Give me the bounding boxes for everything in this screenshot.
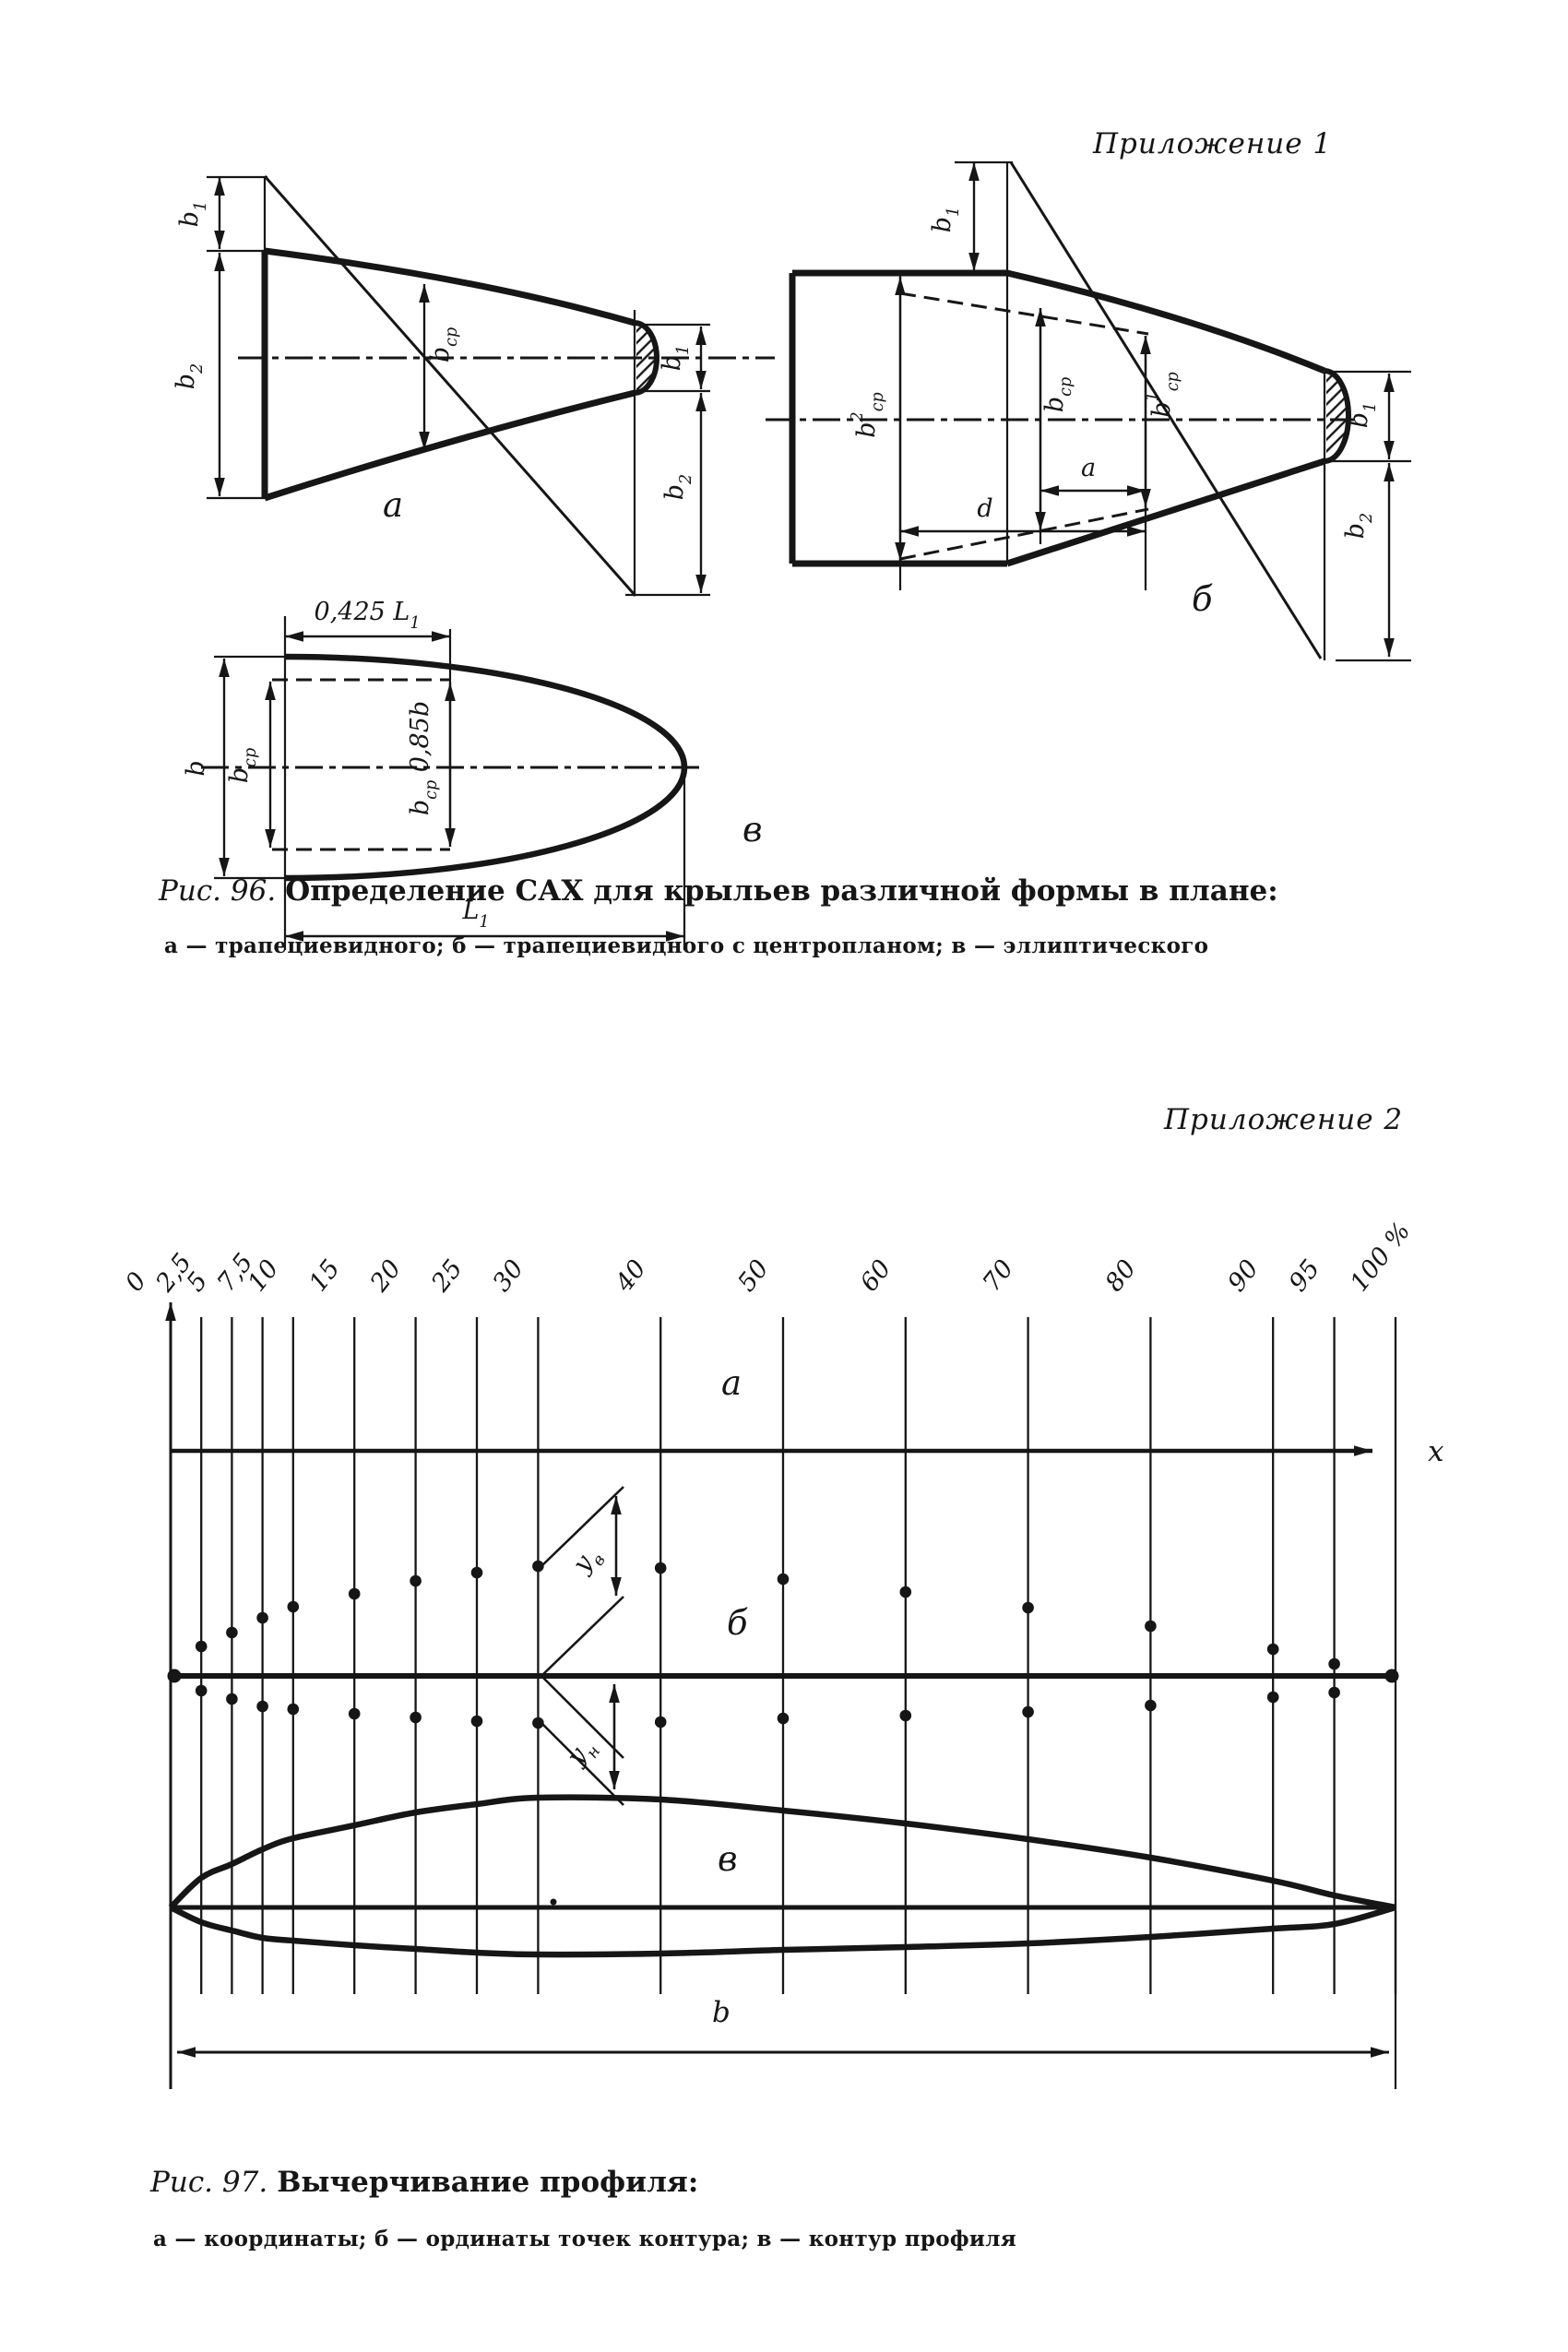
- dim-yn-arrowhead: [609, 1771, 620, 1789]
- dim-b2-right-b-arrowhead: [1384, 463, 1395, 481]
- fig97-diagram: [165, 162, 1398, 2089]
- fig96-diagram-a-trapezoid-wing: [207, 176, 775, 596]
- dim-b1-top-b-arrowhead: [968, 253, 980, 271]
- fig97-percent-scale: 02,557,5101520253040506070809095100 %: [120, 1218, 1416, 1298]
- lower-ordinate-dot: [410, 1712, 422, 1724]
- lower-ordinate-dot: [349, 1708, 361, 1720]
- chord-length-label: b: [712, 1996, 731, 2029]
- dim-b1sr-arrowhead: [1140, 336, 1151, 354]
- station-percent-label: 0: [120, 1267, 152, 1298]
- dim-b-v-arrowhead: [219, 858, 230, 876]
- lower-ordinate-dot: [655, 1716, 667, 1728]
- x-axis-arrowhead: [1354, 1445, 1372, 1456]
- dim-label-a: a: [1081, 454, 1096, 482]
- dim-label-b1-left-a: b1: [175, 201, 210, 227]
- dim-0425l1-arrowhead: [285, 631, 303, 642]
- part-label-v-fig97: в: [718, 1839, 738, 1879]
- dim-b1-right-b-arrowhead: [1384, 441, 1395, 459]
- station-percent-label: 40: [610, 1254, 652, 1298]
- chord-mark-dot: [551, 1899, 557, 1906]
- leading-edge: [265, 251, 635, 323]
- dim-l1-arrowhead: [285, 931, 303, 942]
- lower-ordinate-dot: [1022, 1706, 1034, 1718]
- figures-canvas: b1 b2 bср b1 b2 а b1 b2ср bср b1ср a d b…: [0, 0, 1568, 2352]
- dim-yv-arrowhead: [611, 1577, 622, 1596]
- baseline-end-dot: [1385, 1669, 1399, 1683]
- left-extension-ticks: [207, 177, 267, 498]
- station-percent-label: 60: [855, 1254, 897, 1297]
- dim-label-b1-top-b: b1: [928, 207, 963, 232]
- lower-ordinate-dot: [256, 1701, 268, 1713]
- fig97-dimension-arrows: [165, 162, 1395, 2089]
- trailing-edge: [1007, 461, 1324, 564]
- fig97-station-lines: [201, 1317, 1396, 1994]
- lower-ordinate-dot: [532, 1717, 544, 1729]
- dim-a-arrowhead: [1040, 485, 1059, 496]
- upper-ordinate-dot: [532, 1561, 544, 1573]
- dim-b1-top-b-arrowhead: [968, 162, 980, 181]
- upper-ordinate-dot: [256, 1612, 268, 1624]
- dim-b2-left-a-arrowhead: [214, 253, 225, 271]
- dim-label-bsr-v: bср: [225, 748, 260, 783]
- dim-b2-right-a-arrowhead: [695, 393, 707, 411]
- upper-ordinate-dot: [410, 1575, 422, 1587]
- part-label-b-fig97: б: [727, 1603, 748, 1643]
- dim-label-d: d: [977, 494, 992, 523]
- trailing-edge: [265, 393, 635, 498]
- station-percent-label: 95: [1284, 1254, 1326, 1297]
- dim-label-0425-l1: 0,425 L1: [315, 598, 421, 633]
- dim-label-bsr-b: bср: [1040, 377, 1075, 412]
- dim-label-yv: ув: [566, 1542, 610, 1583]
- dim-l1-arrowhead: [666, 931, 684, 942]
- dim-085b-v-arrowhead: [445, 828, 456, 847]
- upper-ordinate-dot: [226, 1627, 238, 1639]
- dim-label-b2-left-a: b2: [172, 363, 207, 389]
- lower-ordinate-dot: [196, 1685, 208, 1697]
- upper-ordinate-dot: [1267, 1644, 1279, 1656]
- part-label-a-fig97: а: [721, 1363, 742, 1403]
- station-percent-label: 15: [303, 1254, 346, 1297]
- upper-ordinate-dot: [900, 1586, 912, 1598]
- dim-label-l1: L1: [461, 897, 489, 932]
- upper-ordinate-dot: [655, 1562, 667, 1574]
- upper-ordinate-dot: [1022, 1602, 1034, 1614]
- leading-edge: [1007, 273, 1324, 371]
- upper-ordinate-dot: [471, 1567, 483, 1579]
- y-axis-arrowhead: [165, 1302, 176, 1321]
- dim-bsr-a-arrowhead: [419, 284, 430, 303]
- x-axis-label: х: [1428, 1435, 1444, 1468]
- dim-label-yn: ун: [561, 1733, 604, 1775]
- fig96-diagram-b-center-section-wing: [766, 162, 1411, 660]
- dim-b1-right-a-arrowhead: [695, 327, 707, 345]
- station-percent-label: 50: [732, 1254, 775, 1297]
- lower-ordinate-dot: [226, 1693, 238, 1705]
- lower-ordinate-dot: [288, 1704, 300, 1716]
- upper-ordinate-dot: [778, 1574, 790, 1586]
- station-percent-label: 70: [978, 1254, 1020, 1297]
- book-page: Приложение 1 Приложение 2 Рис. 96.Опреде…: [0, 0, 1568, 2352]
- lower-ordinate-dot: [471, 1716, 483, 1728]
- lower-ordinate-dot: [1145, 1700, 1157, 1712]
- part-label-a-fig96: а: [383, 485, 403, 525]
- dim-label-b-root-v: b: [182, 760, 210, 776]
- upper-ordinate-dot: [349, 1588, 361, 1600]
- dim-bsr-b-arrowhead: [1035, 512, 1046, 530]
- station-percent-label: 100 %: [1345, 1218, 1416, 1298]
- dim-label-b2sr: b2ср: [849, 392, 887, 438]
- dim-d-arrowhead: [900, 526, 919, 537]
- dim-label-bsr-085b: bср 0,85b: [406, 701, 441, 815]
- dim-yn-arrowhead: [609, 1684, 620, 1703]
- dim-label-bsr-a: bср: [426, 327, 461, 362]
- lower-ordinate-dot: [1328, 1687, 1340, 1699]
- station-percent-label: 30: [487, 1254, 529, 1297]
- dim-bsr-v-arrowhead: [265, 829, 276, 848]
- upper-ordinate-dot: [196, 1641, 208, 1653]
- upper-ordinate-dot: [1145, 1621, 1157, 1633]
- part-label-v-fig96: в: [742, 810, 763, 849]
- fig97-ordinate-dots: [196, 1561, 1340, 1729]
- dim-b1-left-a-arrowhead: [214, 177, 225, 196]
- lower-ordinate-dot: [1267, 1692, 1279, 1704]
- dim-b2-right-b-arrowhead: [1384, 638, 1395, 657]
- dim-label-b2-right-a: b2: [660, 474, 695, 500]
- station-percent-label: 20: [364, 1254, 407, 1298]
- dim-b2sr-arrowhead: [895, 277, 906, 295]
- dim-label-b2-right-b: b2: [1341, 513, 1376, 539]
- station-percent-label: 80: [1099, 1254, 1142, 1297]
- dim-b1-right-b-arrowhead: [1384, 374, 1395, 392]
- equivalent-te-dashed: [900, 509, 1148, 559]
- dim-b1-left-a-arrowhead: [214, 231, 225, 249]
- dim-chord-b-arrowhead: [1371, 2047, 1389, 2058]
- dim-085b-v-arrowhead: [445, 683, 456, 701]
- station-percent-label: 90: [1222, 1254, 1265, 1297]
- lower-ordinate-dot: [778, 1713, 790, 1725]
- mac-construction-diagonal: [265, 176, 636, 596]
- upper-ordinate-dot: [1328, 1658, 1340, 1670]
- dim-chord-b-arrowhead: [177, 2047, 196, 2058]
- dim-b-v-arrowhead: [219, 659, 230, 677]
- dim-0425l1-arrowhead: [432, 631, 450, 642]
- dim-b1-right-a-arrowhead: [695, 371, 707, 389]
- part-label-b-fig96: б: [1192, 579, 1213, 619]
- yv-leader-lines: [541, 1487, 624, 1676]
- lower-ordinate-dot: [900, 1710, 912, 1722]
- dim-b2-left-a-arrowhead: [214, 478, 225, 496]
- upper-ordinate-dot: [288, 1601, 300, 1613]
- dim-b2-right-a-arrowhead: [695, 575, 707, 593]
- dim-label-b1sr: b1ср: [1144, 372, 1182, 418]
- fig96-diagram-v-elliptical-wing: [201, 616, 703, 950]
- station-percent-label: 25: [425, 1254, 468, 1298]
- dim-d-arrowhead: [1127, 526, 1146, 537]
- dim-bsr-v-arrowhead: [265, 682, 276, 700]
